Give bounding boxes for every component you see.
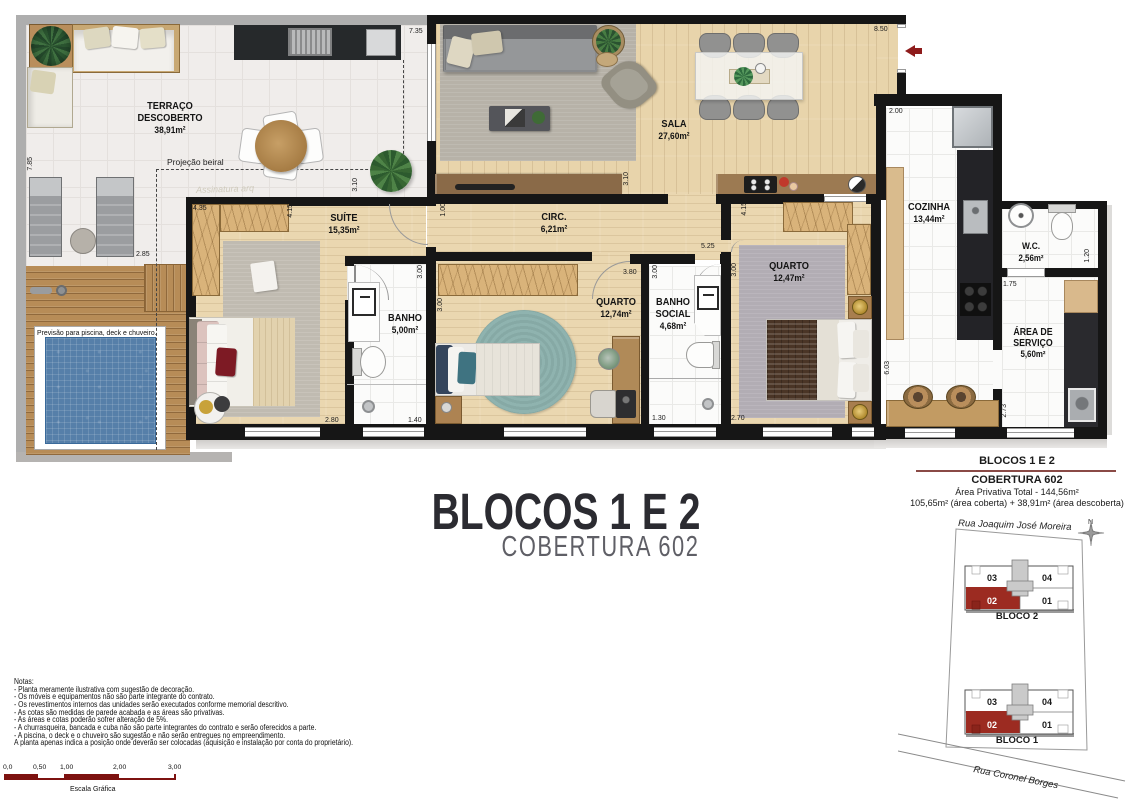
svg-text:03: 03 xyxy=(987,573,997,583)
svg-text:02: 02 xyxy=(987,596,997,606)
svg-text:Rua Coronel Borges: Rua Coronel Borges xyxy=(972,764,1059,791)
svg-text:04: 04 xyxy=(1042,573,1052,583)
svg-text:02: 02 xyxy=(987,720,997,730)
svg-text:01: 01 xyxy=(1042,720,1052,730)
svg-text:03: 03 xyxy=(987,697,997,707)
svg-text:04: 04 xyxy=(1042,697,1052,707)
svg-text:01: 01 xyxy=(1042,596,1052,606)
